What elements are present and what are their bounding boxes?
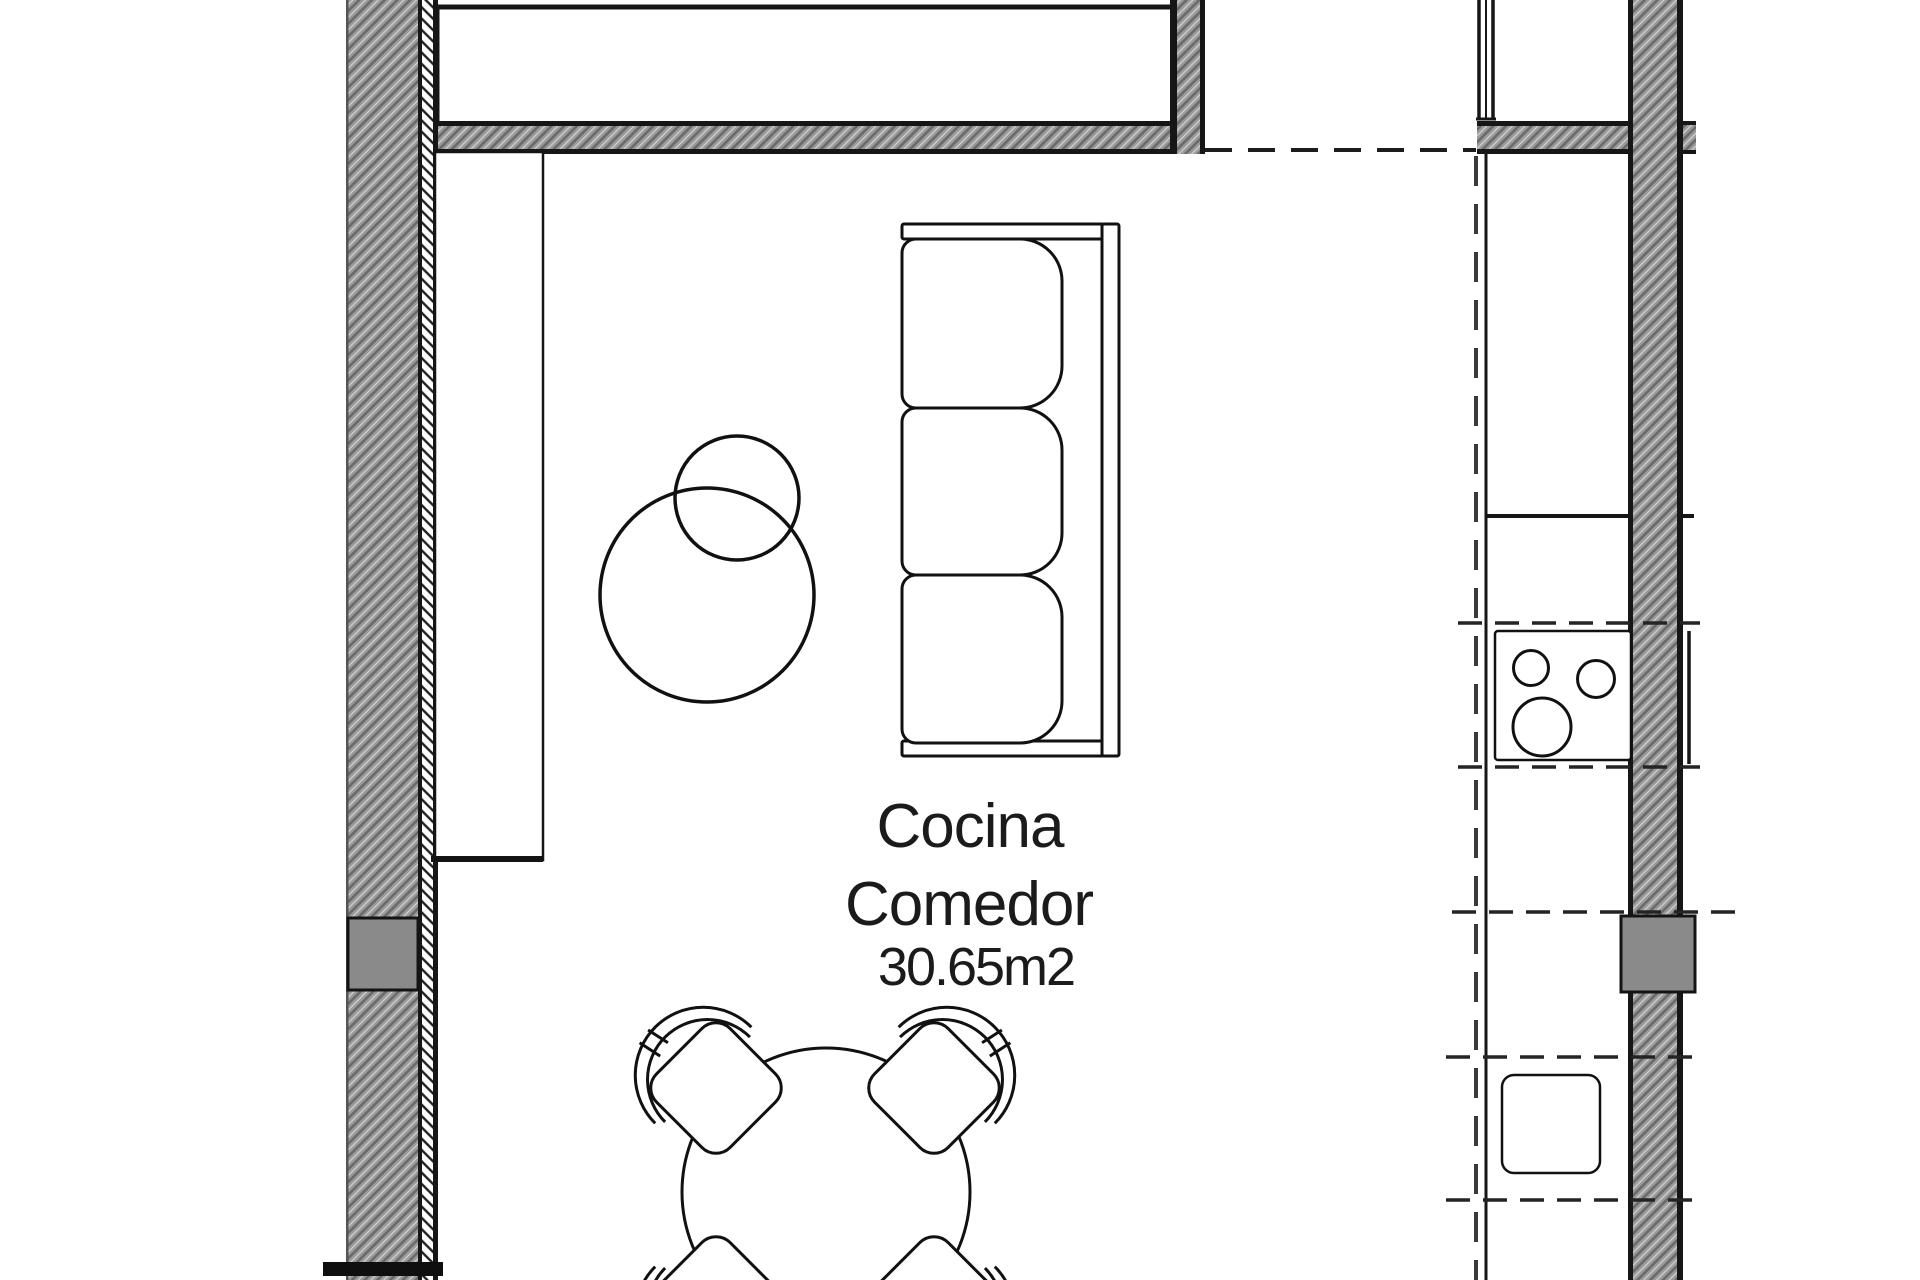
wall-edge-line xyxy=(1200,0,1205,154)
wall-edge-line xyxy=(418,121,1205,126)
room-area-value: 30.65m2 xyxy=(878,937,1074,997)
room-name-line1: Cocina xyxy=(877,792,1066,861)
wall-edge-line xyxy=(1683,150,1696,154)
terrace-pillar xyxy=(1170,0,1205,154)
insulation-stripe-icon xyxy=(422,0,433,1280)
sideboard-base-line xyxy=(431,856,543,862)
room-name-line2: Comedor xyxy=(845,870,1093,939)
wall-stub xyxy=(1683,125,1696,152)
top-wall xyxy=(418,121,1205,154)
left-exterior-wall xyxy=(346,0,438,1280)
sofa-backrest xyxy=(1102,224,1119,756)
sideboard-outline xyxy=(435,152,543,860)
window-frame-icon xyxy=(1476,0,1496,119)
structural-column-icon xyxy=(1621,916,1695,992)
wall-edge-line xyxy=(346,0,349,1280)
wall-edge-line xyxy=(418,0,422,1280)
sofa-cushion xyxy=(902,408,1062,575)
sink-icon xyxy=(1502,1075,1600,1173)
structural-column-icon xyxy=(348,918,418,990)
bottom-wall-cap xyxy=(323,1262,443,1276)
wall-edge-line xyxy=(1677,0,1683,1280)
room-label: Cocina Comedor 30.65m2 xyxy=(845,792,1093,997)
exterior-wall-hatch-icon xyxy=(1477,126,1633,150)
burner-icon xyxy=(1514,651,1549,686)
sofa-cushion xyxy=(902,575,1062,743)
floor-plan: Cocina Comedor 30.65m2 xyxy=(0,0,1920,1280)
wall-edge-line xyxy=(1477,121,1633,126)
terrace-outline xyxy=(437,7,1174,123)
top-right-wall xyxy=(1477,121,1633,154)
exterior-wall-hatch-icon xyxy=(1632,0,1680,1280)
wall-edge-line xyxy=(1170,0,1177,154)
sofa-armrest xyxy=(902,224,1104,239)
floor-plan-drawing: Cocina Comedor 30.65m2 xyxy=(0,0,1920,1280)
wall-edge-line xyxy=(1477,149,1633,154)
exterior-wall-hatch-icon xyxy=(1177,0,1200,154)
sideboard-icon xyxy=(431,152,543,862)
sofa-cushion xyxy=(902,239,1062,408)
burner-icon xyxy=(1578,661,1615,698)
exterior-wall-hatch-icon xyxy=(418,126,1205,150)
cooktop-icon xyxy=(1495,631,1631,760)
wall-edge-line xyxy=(1683,121,1696,125)
exterior-wall-hatch-icon xyxy=(348,0,418,1280)
burner-icon xyxy=(1513,698,1571,756)
